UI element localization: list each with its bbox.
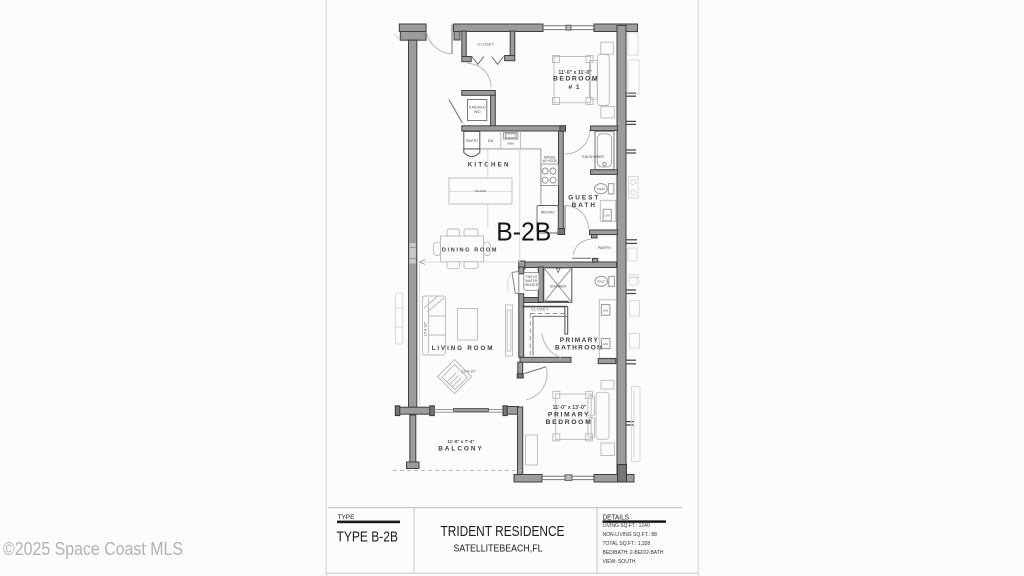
svg-text:17'-6 1/2": 17'-6 1/2"	[424, 321, 428, 336]
svg-text:TOTAL SQ.FT.: 1,328: TOTAL SQ.FT.: 1,328	[603, 541, 651, 547]
svg-text:©2025 Space Coast MLS: ©2025 Space Coast MLS	[3, 538, 183, 559]
svg-text:SHOWER: SHOWER	[550, 284, 567, 288]
svg-text:REF/FRZ: REF/FRZ	[541, 211, 555, 215]
svg-text:11'-8" x 7'-4": 11'-8" x 7'-4"	[447, 439, 474, 444]
svg-text:SATELLITEBEACH,FL: SATELLITEBEACH,FL	[454, 542, 543, 554]
svg-text:W/ HOOD: W/ HOOD	[543, 159, 558, 163]
svg-text:# 1: # 1	[568, 84, 580, 91]
svg-text:BATH: BATH	[572, 202, 597, 209]
svg-text:BALCONY: BALCONY	[438, 446, 484, 453]
svg-text:LAV: LAV	[603, 308, 608, 312]
svg-text:PRIMARY: PRIMARY	[560, 337, 600, 344]
svg-text:12'-9 1/2": 12'-9 1/2"	[462, 369, 477, 373]
svg-text:BATHROOM: BATHROOM	[555, 345, 604, 352]
svg-text:DETAILS: DETAILS	[603, 513, 630, 522]
svg-text:PANTRY: PANTRY	[466, 139, 480, 143]
svg-text:PANTRY: PANTRY	[598, 246, 612, 250]
svg-text:STACKED: STACKED	[469, 105, 486, 109]
svg-text:BED/BATH: 2-BED/2-BATH: BED/BATH: 2-BED/2-BATH	[603, 550, 664, 556]
svg-text:TOILET: TOILET	[597, 280, 606, 284]
svg-text:SINK: SINK	[507, 142, 514, 146]
svg-text:CLOSET: CLOSET	[478, 43, 495, 47]
svg-text:GUEST: GUEST	[568, 195, 600, 202]
svg-text:VIEW: SOUTH: VIEW: SOUTH	[603, 559, 636, 565]
svg-text:LIVING SQ.FT.: 1240: LIVING SQ.FT.: 1240	[603, 523, 650, 529]
svg-text:TOILET: TOILET	[596, 187, 605, 191]
svg-text:TYPE: TYPE	[338, 514, 356, 521]
svg-text:NON-LIVING SQ.FT.: 88: NON-LIVING SQ.FT.: 88	[603, 532, 658, 538]
svg-text:LAV: LAV	[603, 342, 608, 346]
svg-text:DINING ROOM: DINING ROOM	[442, 248, 498, 254]
svg-text:BEDROOM: BEDROOM	[553, 75, 599, 82]
svg-text:TYPE B-2B: TYPE B-2B	[337, 530, 399, 546]
svg-text:LIVING ROOM: LIVING ROOM	[432, 345, 495, 352]
svg-text:ISLAND: ISLAND	[475, 189, 487, 193]
svg-text:TRIDENT RESIDENCE: TRIDENT RESIDENCE	[441, 523, 565, 540]
svg-text:CLOSET: CLOSET	[531, 307, 549, 311]
svg-text:B-2B: B-2B	[496, 218, 551, 246]
svg-text:HEATER: HEATER	[525, 283, 539, 287]
svg-text:TUB/ SHOWER: TUB/ SHOWER	[581, 155, 604, 159]
svg-text:PRIMARY: PRIMARY	[548, 411, 590, 418]
svg-text:W/D: W/D	[474, 110, 481, 114]
svg-text:DW: DW	[488, 139, 494, 143]
svg-text:KITCHEN: KITCHEN	[468, 161, 511, 168]
svg-text:LAV: LAV	[604, 213, 609, 217]
svg-text:BEDROOM: BEDROOM	[546, 419, 593, 426]
svg-text:11'-0" x 13'-0": 11'-0" x 13'-0"	[553, 405, 587, 411]
